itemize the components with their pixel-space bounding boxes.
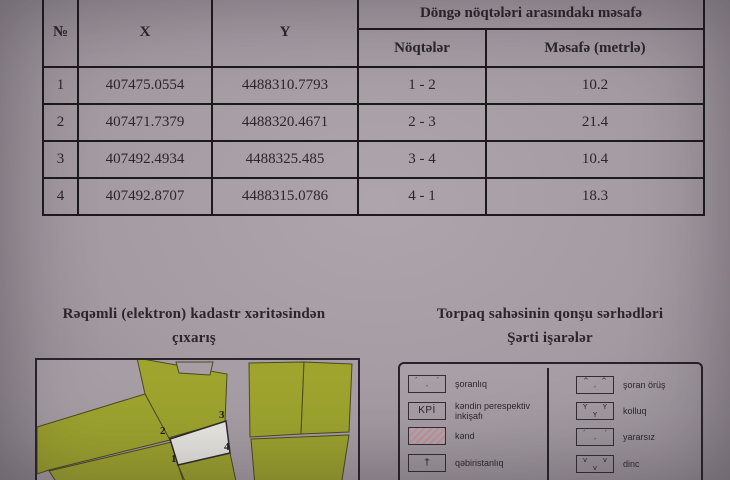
legend-title-line1: Torpaq sahəsinin qonşu sərhədləri <box>392 302 708 326</box>
cell-points: 2 - 3 <box>358 104 486 141</box>
legend-item-soranliq: ʼʼ ʼ şoranlıq <box>408 375 547 393</box>
legend-label: kolluq <box>623 406 718 416</box>
parcel-map-drawing <box>37 360 358 480</box>
cell-points: 1 - 2 <box>358 67 486 104</box>
map-point-label-1: 1 <box>171 454 177 465</box>
col-header-points: Nöqtələr <box>358 29 486 67</box>
legend-label: kənd <box>455 431 550 441</box>
mark: ʼ <box>409 385 445 391</box>
kolluq-symbol-icon: YY Y <box>576 402 614 420</box>
map-point-label-3: 3 <box>219 410 225 421</box>
dinc-symbol-icon: vv v <box>576 455 614 473</box>
mark: ʼ <box>437 377 439 383</box>
cell-y: 4488310.7793 <box>212 67 358 104</box>
mark: ʼ <box>605 430 607 436</box>
legend-item-qebiristanliq: † qəbiristanlıq <box>408 454 547 472</box>
map-point-label-4: 4 <box>224 442 230 453</box>
soran-orush-symbol-icon: ^^ ʼ <box>576 376 614 394</box>
legend: ʼʼ ʼ şoranlıq KPİ kəndin perespektiv ink… <box>398 362 703 480</box>
table-row: 4 407492.8707 4488315.0786 4 - 1 18.3 <box>43 178 704 215</box>
col-header-x: X <box>78 0 212 67</box>
col-header-y: Y <box>212 0 358 67</box>
legend-item-kpi: KPİ kəndin perespektiv inkişafı <box>408 402 547 420</box>
mark: Y <box>577 412 613 418</box>
table-row: 1 407475.0554 4488310.7793 1 - 2 10.2 <box>43 67 704 104</box>
cell-distance: 10.2 <box>486 67 704 104</box>
cell-x: 407471.7379 <box>78 104 212 141</box>
table-row: 2 407471.7379 4488320.4671 2 - 3 21.4 <box>43 104 704 141</box>
col-header-no: № <box>43 0 78 67</box>
document-page: № X Y Döngə nöqtələri arasındakı məsafə … <box>0 0 730 480</box>
mark: Y <box>603 404 607 410</box>
mark: v <box>577 465 613 471</box>
kpi-symbol-icon: KPİ <box>408 402 446 420</box>
cell-no: 3 <box>43 141 78 178</box>
legend-title-line2: Şərti işarələr <box>392 326 708 350</box>
mark: ʼ <box>577 386 613 392</box>
cadastral-map: 2 3 4 1 <box>35 358 360 480</box>
col-header-distance: Məsafə (metrlə) <box>486 29 704 67</box>
cell-no: 2 <box>43 104 78 141</box>
map-title-line1: Rəqəmli (elektron) kadastr xəritəsindən <box>28 302 360 326</box>
cell-y: 4488315.0786 <box>212 178 358 215</box>
mark: ^ <box>583 378 589 384</box>
legend-item-yararsiz: ʼʼ ʼ yararsız <box>576 428 705 446</box>
legend-item-dinc: vv v dinc <box>576 455 705 473</box>
legend-item-soran-orush: ^^ ʼ şoran örüş <box>576 376 705 394</box>
mark: ʼ <box>415 377 417 383</box>
cemetery-symbol-icon: † <box>408 454 446 472</box>
mark: Y <box>583 404 587 410</box>
cell-no: 1 <box>43 67 78 104</box>
yararsiz-symbol-icon: ʼʼ ʼ <box>576 428 614 446</box>
legend-label: şoranlıq <box>455 379 550 389</box>
cell-distance: 18.3 <box>486 178 704 215</box>
mark: v <box>583 457 587 463</box>
map-title-line2: çıxarış <box>28 326 360 350</box>
mark: ʼ <box>583 430 585 436</box>
mark: ʼ <box>577 438 613 444</box>
legend-section-title: Torpaq sahəsinin qonşu sərhədləri Şərti … <box>392 302 708 350</box>
cell-no: 4 <box>43 178 78 215</box>
legend-label: kəndin perespektiv inkişafı <box>455 401 550 421</box>
map-section-title: Rəqəmli (elektron) kadastr xəritəsindən … <box>28 302 360 350</box>
cell-x: 407492.8707 <box>78 178 212 215</box>
cell-distance: 10.4 <box>486 141 704 178</box>
legend-label: yararsız <box>623 432 718 442</box>
village-hatch-icon <box>408 427 446 445</box>
cell-distance: 21.4 <box>486 104 704 141</box>
legend-item-kend: kənd <box>408 427 547 445</box>
map-point-label-2: 2 <box>160 426 166 437</box>
soranliq-symbol-icon: ʼʼ ʼ <box>408 375 446 393</box>
cell-points: 4 - 1 <box>358 178 486 215</box>
cell-y: 4488320.4671 <box>212 104 358 141</box>
legend-label: qəbiristanlıq <box>455 458 550 468</box>
cell-points: 3 - 4 <box>358 141 486 178</box>
table-row: 3 407492.4934 4488325.485 3 - 4 10.4 <box>43 141 704 178</box>
mark: v <box>603 457 607 463</box>
mark: ^ <box>601 378 607 384</box>
legend-label: dinc <box>623 459 718 469</box>
cell-x: 407475.0554 <box>78 67 212 104</box>
cell-x: 407492.4934 <box>78 141 212 178</box>
col-header-distance-group: Döngə nöqtələri arasındakı məsafə <box>358 0 704 29</box>
coordinates-table: № X Y Döngə nöqtələri arasındakı məsafə … <box>42 0 705 216</box>
legend-label: şoran örüş <box>623 380 718 390</box>
legend-item-kolluq: YY Y kolluq <box>576 402 705 420</box>
cell-y: 4488325.485 <box>212 141 358 178</box>
